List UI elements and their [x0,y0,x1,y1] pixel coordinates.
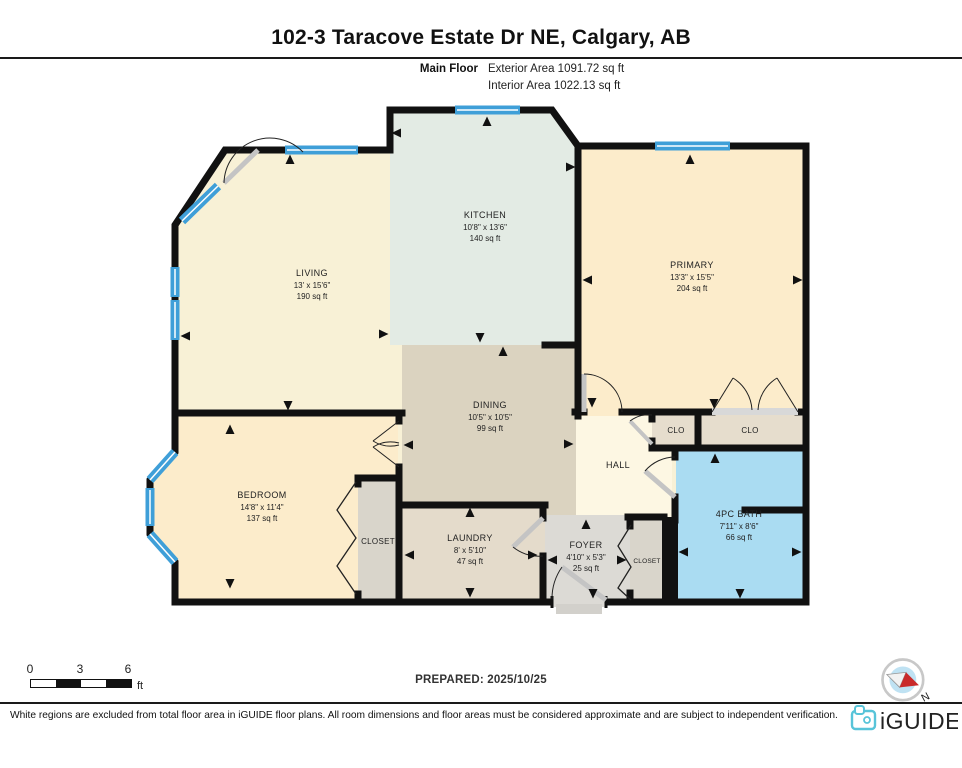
iguide-logo-text: iGUIDE [880,708,958,734]
label-laundry-dims: 8' x 5'10" [454,546,486,555]
floorplan-drawing: KITCHEN 10'8" x 13'6" 140 sq ft LIVING 1… [0,100,962,660]
label-living-name: LIVING [296,268,328,278]
label-bath-dims: 7'11" x 8'6" [720,522,759,531]
header-divider [0,57,962,59]
label-closet-foyer: CLOSET [633,558,660,565]
label-living-area: 190 sq ft [297,292,328,301]
label-laundry-name: LAUNDRY [447,533,493,543]
label-primary-area: 204 sq ft [677,284,708,293]
label-dining-area: 99 sq ft [477,424,504,433]
label-dining-dims: 10'5" x 10'5" [468,413,512,422]
label-bath-name: 4PC BATH [716,509,763,519]
label-primary-dims: 13'3" x 15'5" [670,273,714,282]
room-fills [150,110,806,605]
label-closet-bedroom: CLOSET [361,537,395,546]
label-kitchen-area: 140 sq ft [470,234,501,243]
window-kitchen [455,106,520,115]
floorplan-page: 102-3 Taracove Estate Dr NE, Calgary, AB… [0,0,962,768]
window-primary-top [655,142,730,151]
label-laundry-area: 47 sq ft [457,557,484,566]
floor-label: Main Floor [300,63,478,75]
label-bath-area: 66 sq ft [726,533,753,542]
iguide-logo: iGUIDE [850,704,958,736]
label-hall: HALL [606,460,630,470]
label-clo2: CLO [741,426,758,435]
label-foyer-dims: 4'10" x 5'3" [566,553,606,562]
label-foyer-name: FOYER [569,540,602,550]
label-kitchen-dims: 10'8" x 13'6" [463,223,507,232]
label-kitchen-name: KITCHEN [464,210,506,220]
label-living-dims: 13' x 15'6" [294,281,331,290]
window-living-left [171,267,180,340]
label-clo1: CLO [667,426,684,435]
label-bedroom-name: BEDROOM [237,490,286,500]
footer-disclaimer: White regions are excluded from total fl… [10,710,838,721]
label-foyer-area: 25 sq ft [573,564,600,573]
front-door-opening [552,596,606,614]
footer-divider [0,702,962,704]
label-primary-name: PRIMARY [670,260,714,270]
label-bedroom-area: 137 sq ft [247,514,278,523]
interior-area: Interior Area 1022.13 sq ft [488,80,620,92]
prepared-date: PREPARED: 2025/10/25 [0,674,962,686]
iguide-logo-icon [852,706,875,729]
window-living-top [285,146,358,155]
label-bedroom-dims: 14'8" x 11'4" [240,503,283,512]
exterior-area: Exterior Area 1091.72 sq ft [488,63,624,75]
label-dining-name: DINING [473,400,507,410]
page-title: 102-3 Taracove Estate Dr NE, Calgary, AB [0,26,962,50]
